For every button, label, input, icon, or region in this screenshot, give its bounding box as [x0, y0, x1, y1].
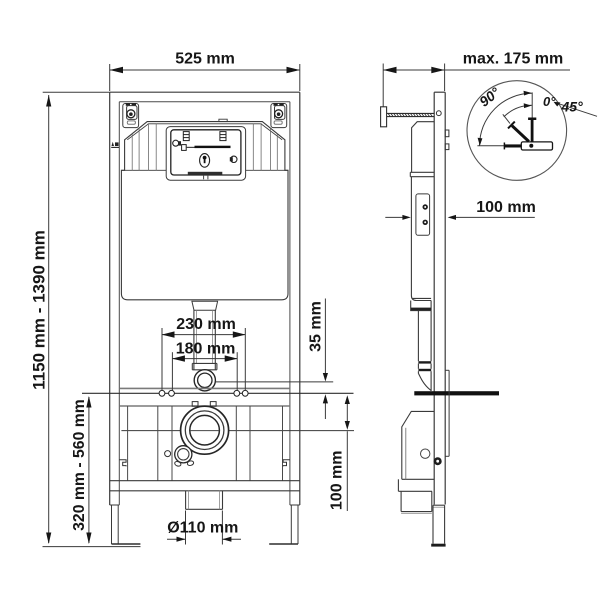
svg-text:100 mm: 100 mm	[328, 451, 345, 511]
svg-text:1150 mm - 1390 mm: 1150 mm - 1390 mm	[29, 230, 48, 390]
svg-text:525 mm: 525 mm	[175, 51, 235, 68]
svg-text:Ø110 mm: Ø110 mm	[167, 519, 238, 536]
svg-text:180 mm: 180 mm	[176, 341, 236, 358]
svg-text:max. 175 mm: max. 175 mm	[463, 51, 564, 68]
svg-text:0°: 0°	[543, 94, 556, 109]
svg-text:230 mm: 230 mm	[176, 316, 236, 333]
svg-text:100 mm: 100 mm	[476, 199, 536, 216]
svg-text:45°: 45°	[561, 99, 584, 115]
svg-text:35 mm: 35 mm	[308, 301, 325, 352]
svg-text:320 mm - 560 mm: 320 mm - 560 mm	[71, 399, 88, 531]
